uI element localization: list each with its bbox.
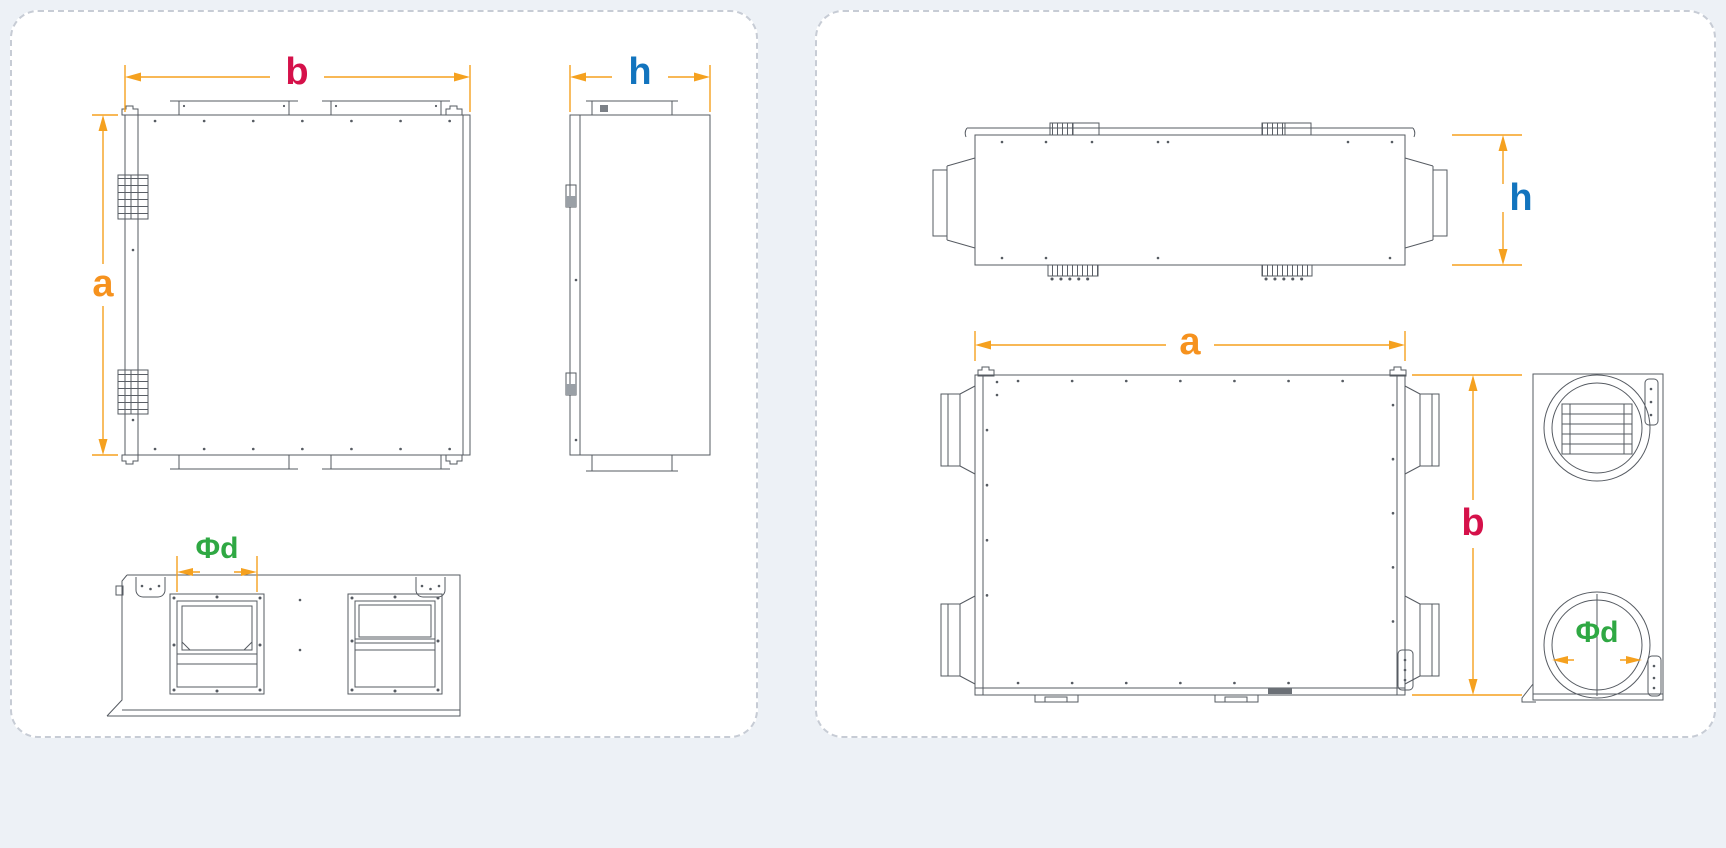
corner-clip-icon	[446, 455, 462, 464]
duct-spigot-left	[933, 158, 975, 248]
corner-clip-icon	[122, 455, 138, 464]
corner-clip-icon	[446, 106, 462, 115]
left-bottom-view	[107, 575, 460, 716]
bottom-tab-icon	[1215, 695, 1258, 702]
duct-spigot-right	[1405, 158, 1447, 248]
duct-collar-top-right	[1405, 386, 1439, 474]
dim-label-a-left: a	[92, 265, 113, 303]
dim-label-b-right: b	[1461, 504, 1484, 542]
dim-label-a-right: a	[1179, 323, 1200, 361]
side-grille-icon	[118, 370, 148, 414]
dim-label-b-left: b	[285, 53, 308, 91]
dim-label-diameter-right: Φd	[1576, 618, 1619, 648]
right-side-elevation	[933, 123, 1447, 279]
corner-bracket-icon	[136, 577, 165, 597]
side-grille-icon	[118, 175, 148, 219]
corner-bracket-icon	[1648, 656, 1661, 696]
duct-collar-top	[586, 101, 678, 115]
door-latch-icon	[566, 373, 576, 395]
technical-line-art	[0, 0, 1726, 848]
door-latch-icon	[566, 185, 576, 207]
left-front-view	[118, 101, 470, 469]
duct-collar-top-right	[322, 101, 450, 115]
mounting-pad-icon	[1050, 123, 1099, 135]
dim-label-h-right: h	[1509, 179, 1532, 217]
bottom-tab-icon	[1035, 695, 1078, 702]
right-plan-view	[941, 367, 1439, 702]
mounting-pad-icon	[1262, 123, 1311, 135]
right-end-view	[1522, 374, 1663, 702]
duct-collar-top-left	[941, 386, 975, 474]
duct-collar-bottom-right	[322, 455, 450, 469]
duct-collar-top-left	[170, 101, 298, 115]
left-side-view	[566, 101, 710, 471]
dim-label-h-left: h	[628, 53, 651, 91]
duct-port-left	[170, 594, 264, 694]
dim-label-diameter-left: Φd	[196, 534, 239, 564]
dimension-diagram-page: { "page": { "background": "#edf1f6", "pa…	[0, 0, 1726, 848]
duct-collar-bottom-left	[170, 455, 298, 469]
label-sticker	[1268, 688, 1292, 694]
duct-collar-bottom-right	[1405, 596, 1439, 684]
foot-pad-icon	[1048, 265, 1098, 279]
foot-pad-icon	[1262, 265, 1312, 279]
duct-collar-bottom	[586, 455, 678, 471]
round-port-grille	[1544, 375, 1650, 481]
duct-port-right	[348, 594, 442, 694]
duct-collar-bottom-left	[941, 596, 975, 684]
